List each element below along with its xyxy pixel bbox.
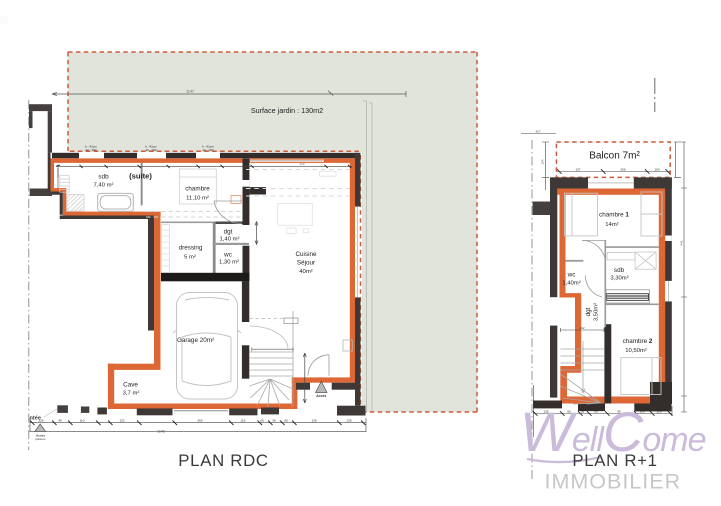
svg-text:14m²: 14m²: [605, 222, 618, 228]
svg-text:10,50m²: 10,50m²: [625, 348, 647, 354]
svg-text:Cave: Cave: [123, 382, 138, 389]
svg-text:7,40 m²: 7,40 m²: [94, 183, 114, 189]
svg-text:450: 450: [299, 162, 304, 166]
svg-text:36: 36: [272, 419, 276, 423]
svg-text:Surface jardin : 130m2: Surface jardin : 130m2: [251, 106, 323, 115]
svg-text:135: 135: [346, 419, 351, 423]
svg-text:alt : 190: alt : 190: [202, 148, 213, 152]
svg-text:wc: wc: [223, 252, 232, 259]
svg-text:Accès: Accès: [316, 394, 326, 398]
svg-text:60: 60: [284, 419, 288, 423]
svg-text:sdb: sdb: [614, 267, 625, 274]
svg-text:IMMOBILIER: IMMOBILIER: [544, 470, 681, 494]
svg-text:1147: 1147: [186, 90, 194, 94]
svg-text:11,10 m²: 11,10 m²: [186, 196, 209, 202]
svg-text:123: 123: [656, 410, 661, 414]
svg-text:26: 26: [581, 410, 585, 414]
svg-text:dressing: dressing: [179, 245, 203, 252]
svg-text:136: 136: [311, 419, 316, 423]
svg-text:124: 124: [541, 159, 545, 164]
svg-text:chambre 1: chambre 1: [599, 212, 629, 219]
svg-text:sdb: sdb: [98, 174, 109, 181]
svg-text:3,50m²: 3,50m²: [594, 303, 600, 321]
svg-text:Séjour: Séjour: [297, 260, 315, 267]
svg-text:Balcon 7m²: Balcon 7m²: [589, 151, 640, 162]
svg-text:dgt: dgt: [224, 229, 233, 236]
svg-text:1142: 1142: [157, 430, 164, 434]
svg-text:40m²: 40m²: [299, 269, 312, 275]
svg-text:3,7 m²: 3,7 m²: [123, 391, 140, 397]
svg-text:piétons: piétons: [36, 437, 46, 441]
svg-text:200: 200: [620, 168, 625, 172]
svg-text:wc: wc: [567, 272, 576, 279]
svg-text:110: 110: [80, 419, 85, 423]
svg-text:Garage 20m²: Garage 20m²: [177, 337, 214, 344]
svg-text:PLAN RDC: PLAN RDC: [178, 451, 268, 470]
svg-text:192: 192: [579, 326, 584, 330]
svg-text:116: 116: [241, 419, 246, 423]
svg-text:137: 137: [575, 168, 580, 172]
svg-text:132: 132: [119, 419, 124, 423]
svg-text:427: 427: [535, 129, 540, 133]
svg-text:60: 60: [260, 419, 264, 423]
svg-text:1,30 m²: 1,30 m²: [219, 260, 239, 266]
svg-text:alt : 190: alt : 190: [145, 148, 156, 152]
svg-text:(suite): (suite): [129, 172, 152, 181]
svg-text:PLAN R+1: PLAN R+1: [572, 451, 657, 470]
svg-text:441: 441: [680, 240, 684, 245]
svg-text:260: 260: [197, 419, 202, 423]
svg-text:dgt: dgt: [585, 307, 592, 316]
svg-text:1,40m²: 1,40m²: [562, 281, 580, 287]
svg-text:Cuisine: Cuisine: [296, 251, 317, 258]
svg-text:alt : 190: alt : 190: [85, 148, 96, 152]
svg-text:5 m²: 5 m²: [184, 255, 196, 261]
svg-text:1,40 m²: 1,40 m²: [220, 237, 240, 243]
svg-text:150: 150: [654, 168, 659, 172]
svg-text:ntée: ntée: [30, 416, 42, 422]
svg-text:chambre: chambre: [185, 186, 210, 193]
svg-text:3,30m²: 3,30m²: [610, 276, 628, 282]
svg-text:chambre 2: chambre 2: [623, 338, 653, 345]
svg-text:40: 40: [58, 419, 62, 423]
svg-text:60: 60: [594, 410, 598, 414]
